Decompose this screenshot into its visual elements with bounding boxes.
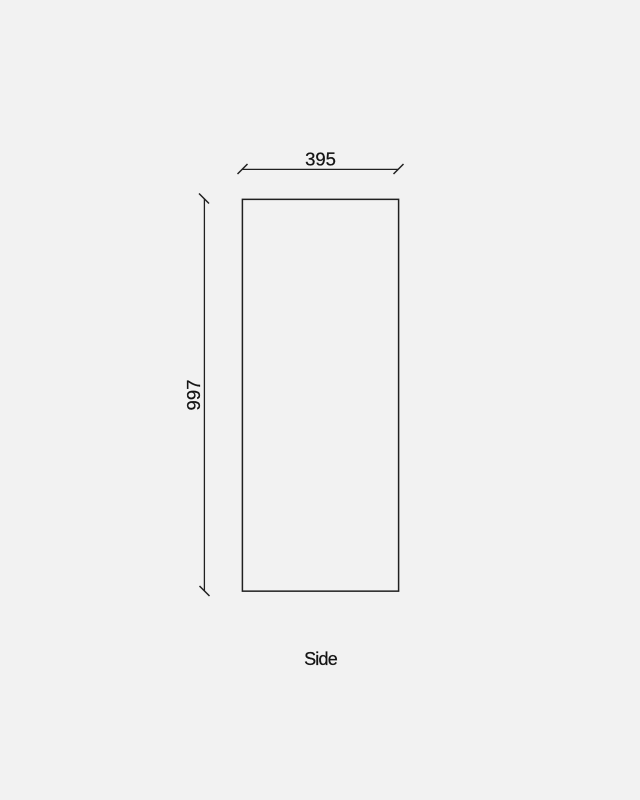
svg-text:395: 395 <box>305 149 336 170</box>
svg-text:997: 997 <box>183 380 204 411</box>
svg-text:Side: Side <box>304 649 338 669</box>
